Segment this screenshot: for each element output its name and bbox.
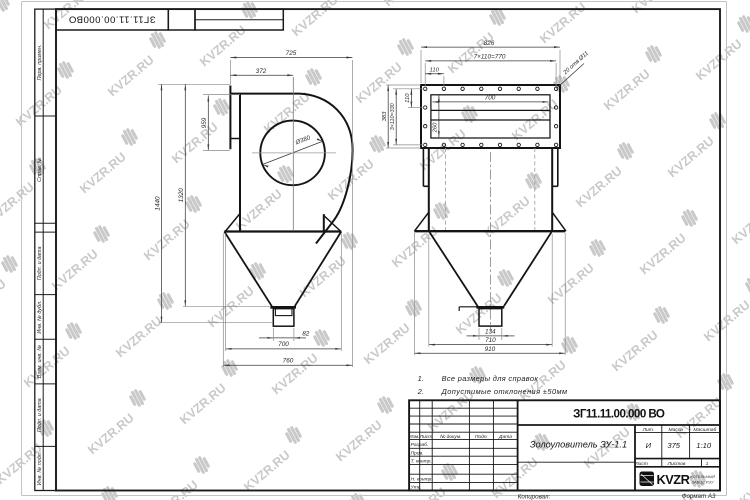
svg-text:Формат А3: Формат А3: [682, 493, 716, 500]
svg-text:ЗГ11.11.00.000ВО: ЗГ11.11.00.000ВО: [68, 13, 155, 24]
svg-text:Инв. № дубл.: Инв. № дубл.: [37, 300, 43, 333]
svg-text:959: 959: [201, 117, 208, 128]
svg-text:383: 383: [382, 111, 388, 122]
svg-text:KVZR: KVZR: [657, 472, 690, 487]
svg-text:1320: 1320: [178, 188, 185, 203]
svg-text:826: 826: [484, 40, 495, 47]
svg-text:Золоуловитель ЗУ-1.1: Золоуловитель ЗУ-1.1: [530, 440, 627, 450]
svg-text:Подп. и дата: Подп. и дата: [37, 247, 43, 281]
svg-text:1: 1: [706, 461, 709, 467]
svg-text:Все размеры для справок: Все размеры для справок: [442, 374, 539, 383]
svg-text:Взам. инв. №: Взам. инв. №: [37, 345, 43, 379]
svg-text:№ докум.: № докум.: [440, 434, 462, 440]
svg-text:2.: 2.: [417, 387, 424, 396]
svg-text:Разраб.: Разраб.: [411, 442, 429, 448]
svg-text:И: И: [646, 441, 652, 450]
svg-text:1440: 1440: [154, 196, 161, 211]
svg-text:Лист: Лист: [419, 434, 433, 440]
svg-text:372: 372: [256, 68, 267, 75]
svg-text:7×110=770: 7×110=770: [474, 54, 506, 61]
svg-text:110: 110: [405, 93, 411, 103]
svg-text:710: 710: [485, 337, 496, 344]
svg-text:Н. контр.: Н. контр.: [411, 477, 433, 483]
svg-text:Изм.: Изм.: [409, 434, 419, 440]
svg-text:ЗГ11.11.00.000 ВО: ЗГ11.11.00.000 ВО: [573, 407, 665, 420]
svg-text:Пров.: Пров.: [411, 450, 424, 456]
svg-text:Т. контр.: Т. контр.: [411, 458, 432, 464]
svg-text:110: 110: [430, 67, 440, 73]
svg-text:ЗАВОД РЭУ: ЗАВОД РЭУ: [692, 479, 715, 484]
svg-text:Масштаб: Масштаб: [693, 427, 716, 433]
svg-text:375: 375: [667, 441, 680, 450]
svg-text:КОТЕЛЬНЫЙ: КОТЕЛЬНЫЙ: [690, 474, 715, 479]
svg-text:700: 700: [485, 94, 496, 101]
svg-text:Утв.: Утв.: [411, 485, 422, 491]
svg-text:Перв. примен.: Перв. примен.: [37, 45, 43, 81]
svg-text:1:10: 1:10: [696, 441, 712, 450]
svg-text:Справ. №: Справ. №: [37, 157, 43, 182]
svg-text:Лист: Лист: [634, 461, 648, 467]
svg-text:760: 760: [283, 358, 294, 365]
svg-text:260: 260: [432, 122, 438, 134]
svg-text:Листов: Листов: [667, 461, 686, 467]
svg-text:700: 700: [278, 341, 289, 348]
svg-text:Допустимые отклонения ±50мм: Допустимые отклонения ±50мм: [441, 387, 568, 396]
svg-text:Инв. № подл.: Инв. № подл.: [37, 452, 43, 485]
svg-text:910: 910: [485, 346, 496, 353]
svg-text:3×110=330: 3×110=330: [390, 103, 396, 130]
svg-text:Дата: Дата: [498, 434, 512, 440]
svg-text:Подп.: Подп.: [475, 434, 488, 440]
svg-text:Подп. и дата: Подп. и дата: [37, 398, 43, 432]
svg-text:82: 82: [302, 331, 310, 338]
svg-text:1.: 1.: [418, 374, 424, 383]
svg-text:725: 725: [286, 50, 297, 57]
svg-text:134: 134: [485, 328, 496, 335]
svg-text:Копировал:: Копировал:: [518, 493, 551, 500]
svg-text:Масса: Масса: [668, 427, 683, 433]
svg-text:Лит.: Лит.: [642, 427, 654, 433]
